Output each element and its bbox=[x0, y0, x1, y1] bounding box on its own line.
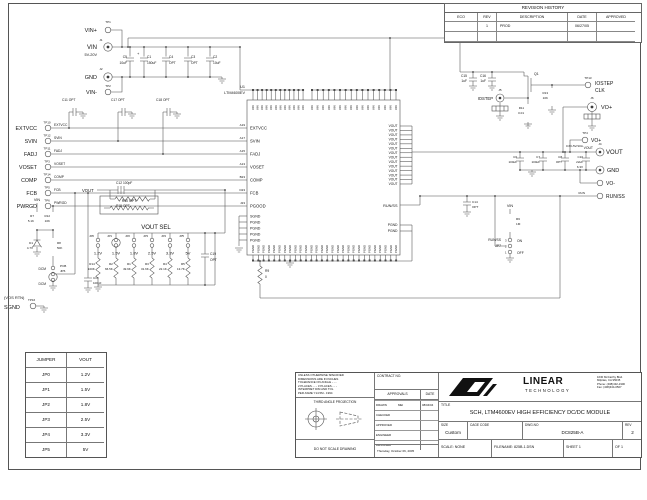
of-value: 1 bbox=[621, 445, 623, 449]
approval-cell bbox=[397, 411, 420, 420]
revision-cell bbox=[568, 32, 597, 42]
sheet-cell: SHEET 1 bbox=[563, 440, 612, 457]
size-value: Custom bbox=[441, 430, 465, 435]
jumper-table-row: JP43.3V bbox=[26, 428, 106, 443]
revision-cell: DATE bbox=[568, 13, 597, 22]
approvals-label: APPROVALS bbox=[375, 390, 420, 399]
schematic-sheet: TP1 VIN+ J1 VIN 5V-20V J2 GND TP2 VIN- C… bbox=[0, 0, 647, 500]
approval-cell: MEI bbox=[397, 401, 420, 410]
approval-cell bbox=[397, 421, 420, 430]
rev-cell: REV2 bbox=[622, 422, 642, 439]
jumper-table-cell: JP2 bbox=[26, 398, 67, 413]
cage-cell: CAGE CODE bbox=[467, 422, 522, 439]
third-angle-symbol bbox=[300, 404, 370, 434]
revision-cell: DESCRIPTION bbox=[497, 13, 568, 22]
contract-no: CONTRACT NO. bbox=[374, 373, 438, 389]
approval-row: APPROVED bbox=[375, 420, 438, 430]
approval-cell bbox=[420, 431, 439, 440]
revision-cell bbox=[478, 32, 497, 42]
filename-label: FILENAME: bbox=[494, 445, 513, 449]
jumper-table-cell: 5V bbox=[67, 443, 104, 457]
revision-cell bbox=[597, 32, 635, 42]
print-date: Thursday, October 06, 2005 bbox=[374, 444, 438, 457]
sheet-label: SHEET bbox=[566, 445, 578, 449]
do-not-scale: DO NOT SCALE DRAWING bbox=[296, 439, 374, 457]
approvals-header: APPROVALS DATE bbox=[374, 389, 438, 399]
cage-label: CAGE CODE bbox=[470, 423, 489, 427]
revision-cell: REV bbox=[478, 13, 497, 22]
approval-cell bbox=[397, 431, 420, 440]
jumper-table-cell: 1.8V bbox=[67, 398, 104, 413]
approval-cell: APPROVED bbox=[375, 421, 397, 430]
title-label: TITLE bbox=[441, 403, 450, 407]
revision-cell: ECO bbox=[445, 13, 478, 22]
jumper-table-cell: 3.3V bbox=[67, 428, 104, 443]
jumper-table-row: JP11.5V bbox=[26, 383, 106, 398]
jumper-table-cell: JP0 bbox=[26, 368, 67, 383]
revision-cell: 06/27/05 bbox=[568, 22, 597, 32]
filename-value: 825B-1.DSN bbox=[514, 445, 534, 449]
of-label: OF bbox=[615, 445, 620, 449]
company-name: LINEAR bbox=[523, 376, 563, 387]
revision-cell: 1 bbox=[478, 22, 497, 32]
drawing-title: SCH, LTM4600EV HIGH EFFICIENCY DC/DC MOD… bbox=[441, 410, 639, 416]
jumper-table-header: JUMPERVOUT bbox=[26, 353, 106, 368]
jumper-table-row: JP32.5V bbox=[26, 413, 106, 428]
approval-row: CHECKED bbox=[375, 410, 438, 420]
jumper-table-row: JP01.2V bbox=[26, 368, 106, 383]
jumper-table-cell: JUMPER bbox=[26, 353, 67, 368]
jumper-table-cell: JP1 bbox=[26, 383, 67, 398]
approval-cell: DRAWN bbox=[375, 401, 397, 410]
rev-value: 2 bbox=[625, 430, 640, 435]
approval-cell: CHECKED bbox=[375, 411, 397, 420]
size-row: SIZECustom CAGE CODE DWG.NODC825B-A REV2 bbox=[438, 421, 641, 439]
filename-cell: FILENAME: 825B-1.DSN bbox=[491, 440, 563, 457]
jumper-table-cell: JP5 bbox=[26, 443, 67, 457]
title-box: TITLE SCH, LTM4600EV HIGH EFFICIENCY DC/… bbox=[438, 401, 641, 421]
revision-cell bbox=[597, 22, 635, 32]
lt-logo-icon bbox=[441, 374, 521, 402]
approval-row: DRAWNMEI08/04/04 bbox=[375, 400, 438, 410]
approval-cell: 08/04/04 bbox=[420, 401, 439, 410]
revision-data-row: 1PROD06/27/05 bbox=[445, 22, 641, 32]
scale-cell: SCALE: NONE bbox=[439, 440, 491, 457]
revision-history-title: REVISION HISTORY bbox=[445, 4, 641, 13]
approval-cell: ENGINEER bbox=[375, 431, 397, 440]
address-line: Fax: (408)434-0507 bbox=[597, 386, 625, 389]
rev-label: REV bbox=[625, 423, 632, 427]
revision-cell bbox=[445, 32, 478, 42]
company-address: 1630 McCarthy Blvd.Milpitas, CA 95035Pho… bbox=[597, 376, 625, 390]
dwg-label: DWG.NO bbox=[525, 423, 538, 427]
jumper-table-cell: 1.5V bbox=[67, 383, 104, 398]
jumper-table: JUMPERVOUTJP01.2VJP11.5VJP21.8VJP32.5VJP… bbox=[25, 352, 107, 458]
of-cell: OF 1 bbox=[612, 440, 642, 457]
sheet-value: 1 bbox=[579, 445, 581, 449]
revision-history-table: REVISION HISTORY ECOREVDESCRIPTIONDATEAP… bbox=[444, 3, 642, 43]
approvals-rows: DRAWNMEI08/04/04CHECKEDAPPROVEDENGINEERD… bbox=[374, 399, 438, 444]
jumper-table-cell: 2.5V bbox=[67, 413, 104, 428]
jumper-table-row: JP55V bbox=[26, 443, 106, 457]
company-name-sub: TECHNOLOGY bbox=[525, 388, 570, 393]
revision-data-row bbox=[445, 32, 641, 42]
approval-cell bbox=[420, 411, 439, 420]
dwg-no: DC825B-A bbox=[525, 430, 620, 435]
approval-cell bbox=[420, 421, 439, 430]
jumper-table-cell: JP3 bbox=[26, 413, 67, 428]
jumper-table-cell: JP4 bbox=[26, 428, 67, 443]
spec-line: PER ASME Y14.5M - 1994 bbox=[298, 392, 372, 396]
third-angle-projection: THIRD ANGLE PROJECTION bbox=[296, 397, 374, 439]
jumper-table-cell: 1.2V bbox=[67, 368, 104, 383]
size-cell: SIZECustom bbox=[439, 422, 467, 439]
revision-header-row: ECOREVDESCRIPTIONDATEAPPROVED bbox=[445, 13, 641, 22]
approval-row: ENGINEER bbox=[375, 430, 438, 440]
spec-notes: UNLESS OTHERWISE SPECIFIEDDIMENSIONS ARE… bbox=[296, 373, 374, 397]
jumper-table-row: JP21.8V bbox=[26, 398, 106, 413]
revision-history-body: ECOREVDESCRIPTIONDATEAPPROVED1PROD06/27/… bbox=[445, 13, 641, 42]
date-label: DATE bbox=[420, 390, 439, 399]
revision-cell bbox=[445, 22, 478, 32]
company-logo-box: LINEAR TECHNOLOGY 1630 McCarthy Blvd.Mil… bbox=[438, 373, 641, 401]
size-label: SIZE bbox=[441, 423, 448, 427]
jumper-table-cell: VOUT bbox=[67, 353, 104, 368]
revision-cell: PROD bbox=[497, 22, 568, 32]
title-block: UNLESS OTHERWISE SPECIFIEDDIMENSIONS ARE… bbox=[295, 372, 642, 458]
scale-row: SCALE: NONE FILENAME: 825B-1.DSN SHEET 1… bbox=[438, 439, 641, 457]
revision-cell: APPROVED bbox=[597, 13, 635, 22]
revision-cell bbox=[497, 32, 568, 42]
dwg-cell: DWG.NODC825B-A bbox=[522, 422, 622, 439]
